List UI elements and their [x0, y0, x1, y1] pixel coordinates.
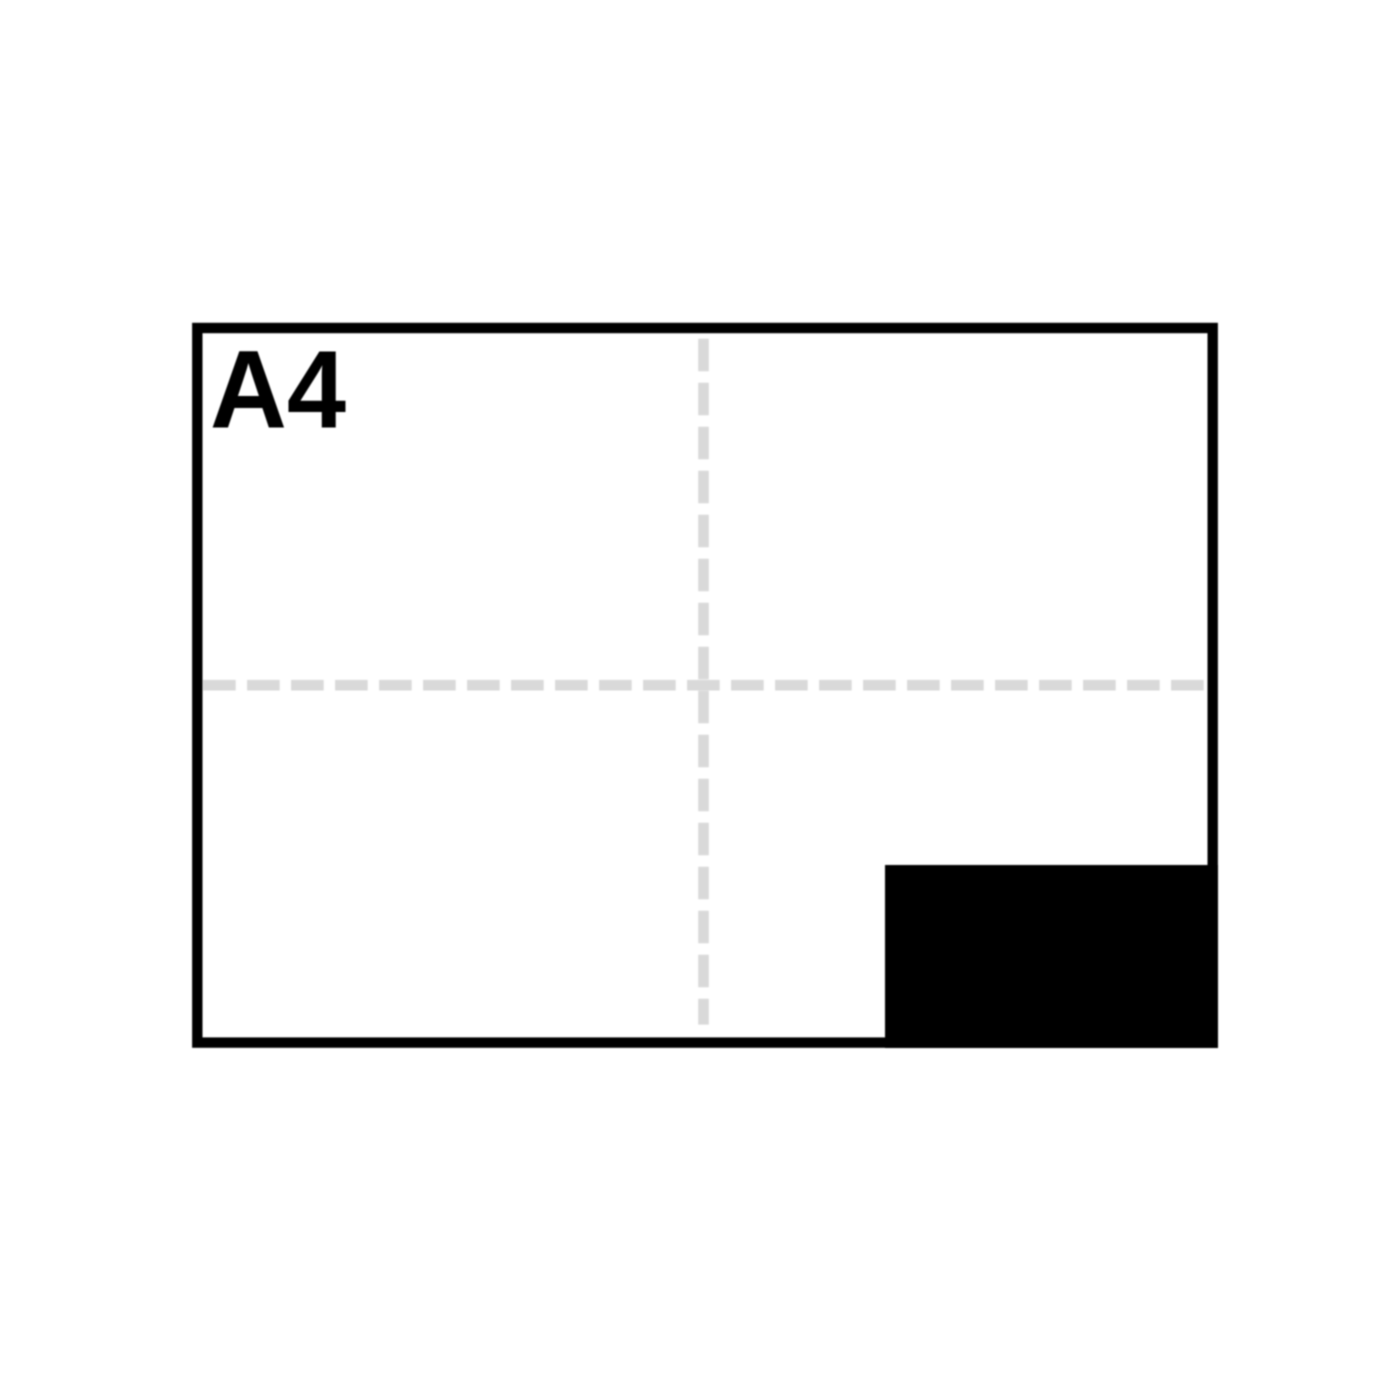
svg-text:A4: A4 [210, 328, 346, 451]
